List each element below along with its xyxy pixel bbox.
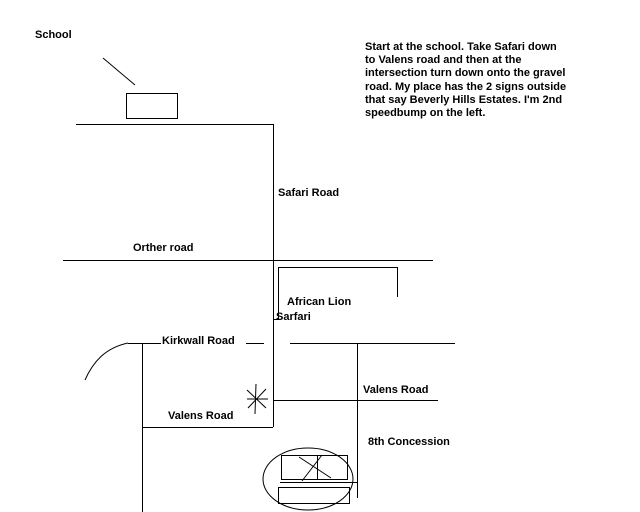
eighth-concession-label: 8th Concession (368, 436, 450, 449)
school-pointer-line (103, 58, 135, 85)
intersection-star-marker (247, 384, 268, 414)
safari-road-label: Safari Road (278, 187, 339, 200)
valens-road-right-label: Valens Road (363, 384, 428, 397)
directions-line: Start at the school. Take Safari down (365, 41, 566, 54)
directions-text: Start at the school. Take Safari down to… (365, 41, 566, 120)
directions-line: speedbump on the left. (365, 107, 566, 120)
directions-line: to Valens road and then at the (365, 54, 566, 67)
hand-drawn-directions-map: School Start at the school. Take Safari … (0, 0, 640, 512)
african-lion-safari-label-line2: Sarfari (276, 311, 311, 324)
directions-line: intersection turn down onto the gravel (365, 67, 566, 80)
directions-line: road. My place has the 2 signs outside (365, 81, 566, 94)
destination-x-marker (299, 455, 331, 481)
orther-road-label: Orther road (133, 242, 194, 255)
school-label: School (35, 29, 72, 42)
african-lion-safari-label-line1: African Lion (287, 296, 351, 309)
school-building (127, 94, 178, 119)
kirkwall-road-label: Kirkwall Road (162, 335, 235, 348)
kirkwall-road-curve (85, 343, 128, 380)
valens-road-left-label: Valens Road (168, 410, 233, 423)
directions-line: that say Beverly Hills Estates. I'm 2nd (365, 94, 566, 107)
